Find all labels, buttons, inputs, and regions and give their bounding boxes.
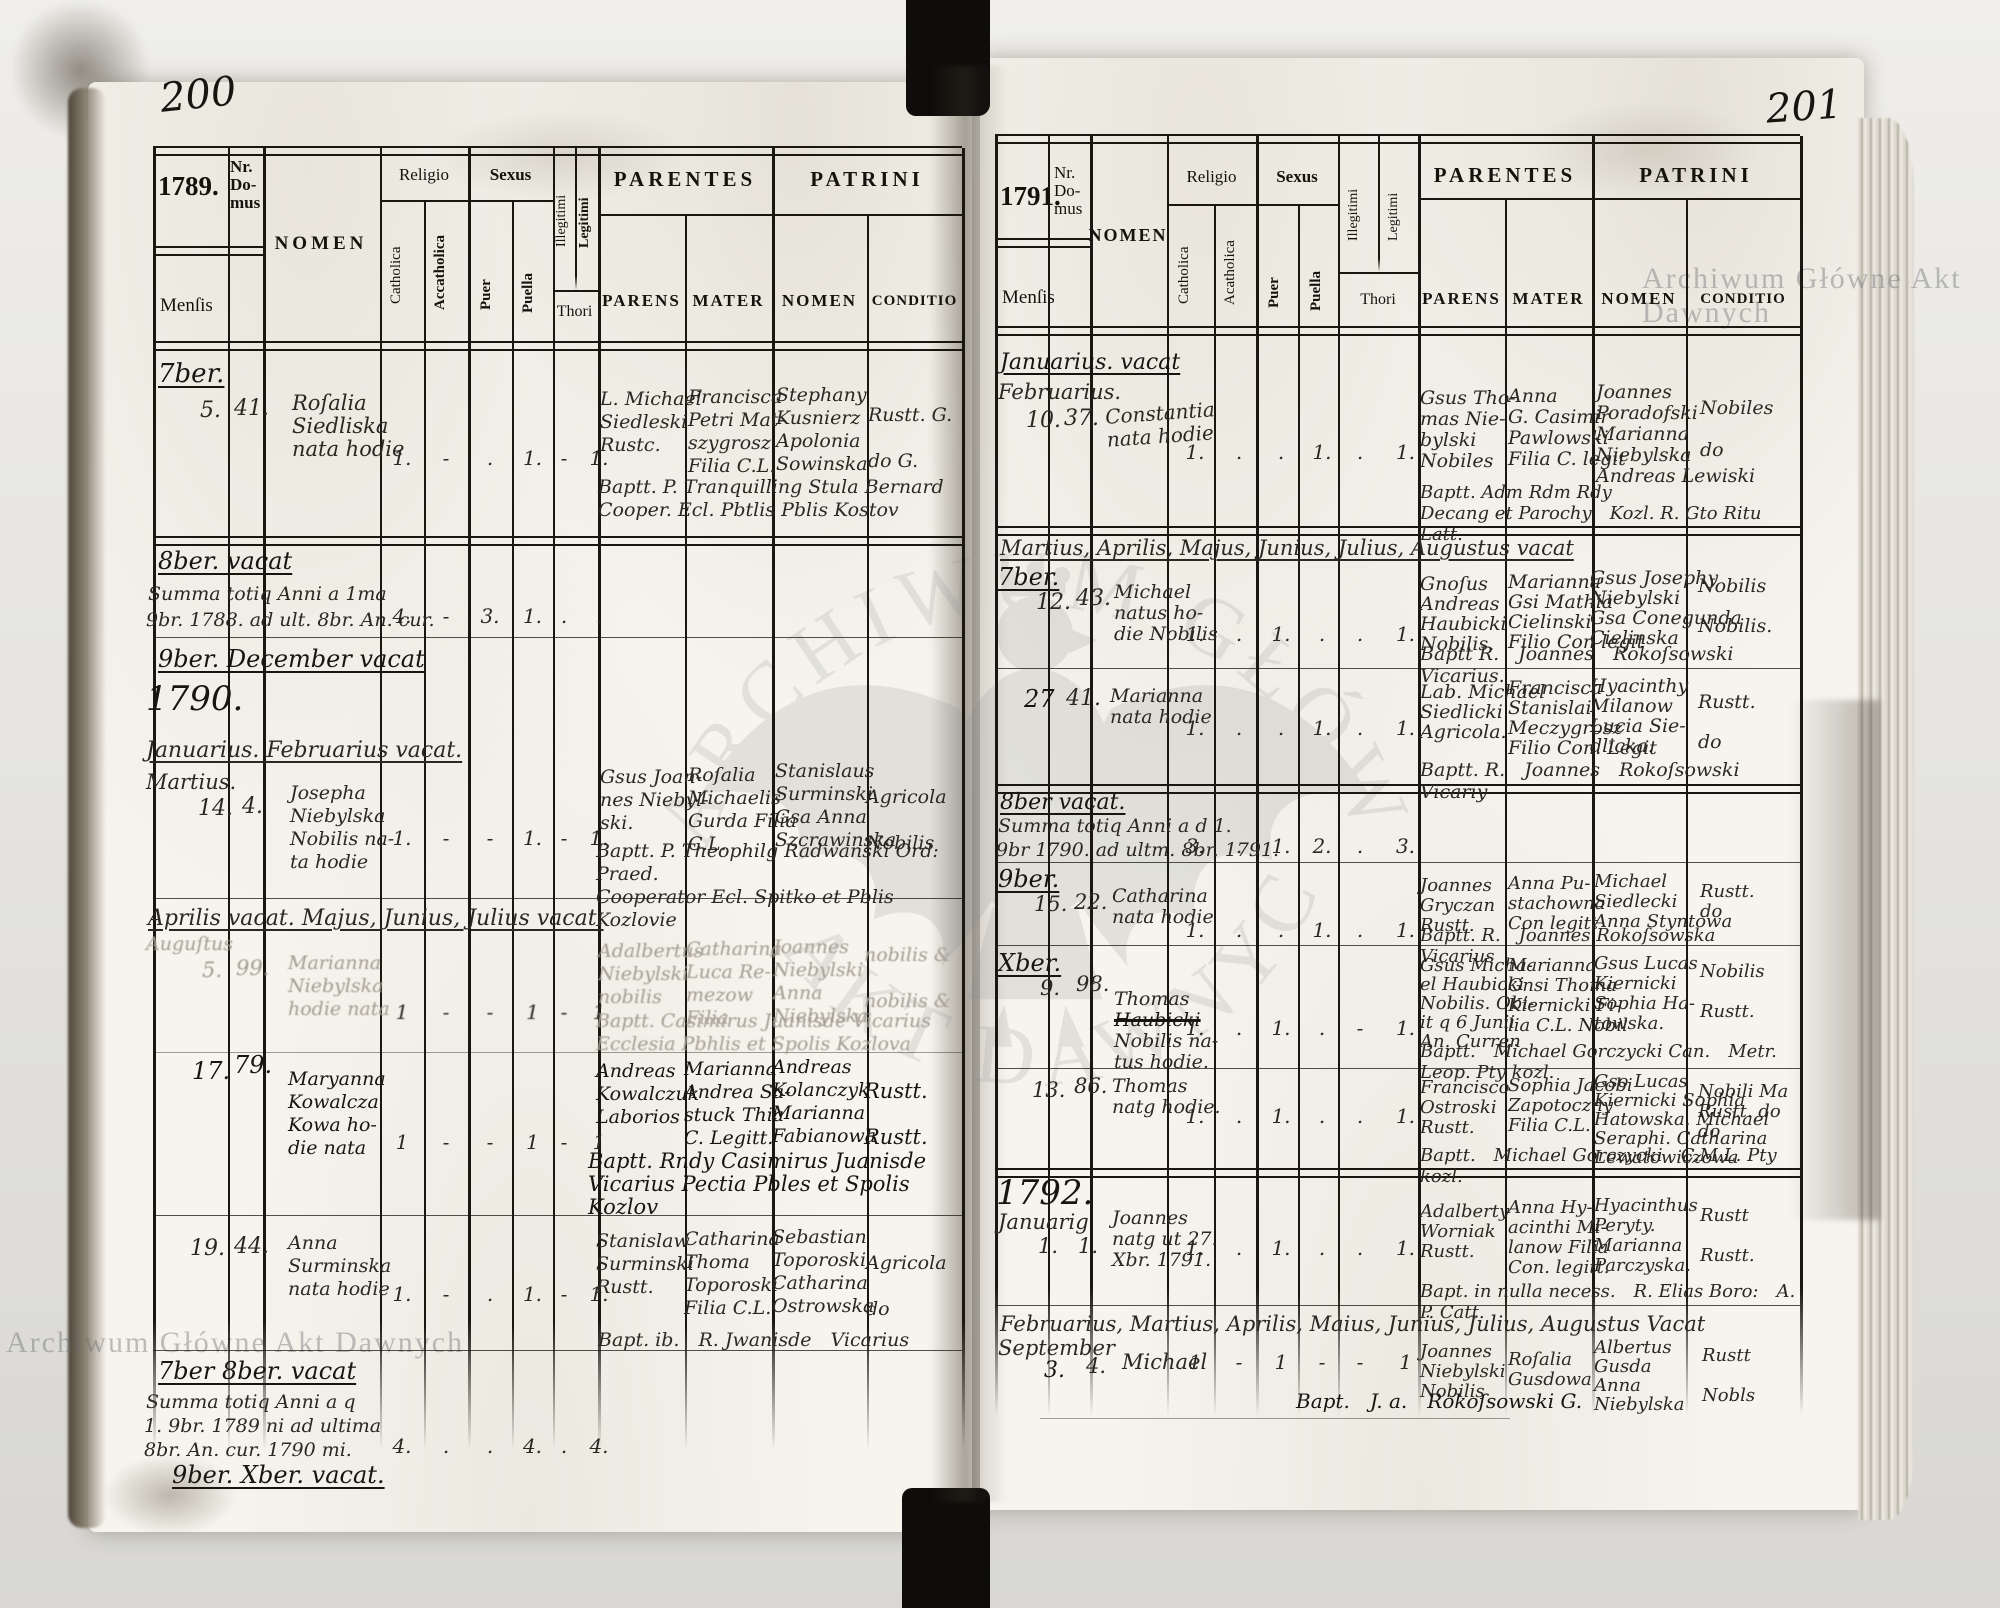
year-heading: 1792. xyxy=(996,1174,1093,1213)
entry-separator xyxy=(1040,1418,1510,1419)
record-baptizer: Baptt. P. Tranquilling Stula Bernard Coo… xyxy=(598,476,968,522)
mark-puer: . xyxy=(1260,716,1302,740)
year-heading: 1790. xyxy=(146,680,243,719)
mark-illegitimi: - xyxy=(1342,1350,1378,1374)
mark-puer: 1. xyxy=(1260,834,1302,858)
record-house-number: 4. xyxy=(1086,1354,1106,1378)
mark-catholica: 1. xyxy=(1172,622,1218,646)
record-parens: Gnoſus Andreas Haubicki Nobilis. xyxy=(1420,574,1507,654)
table-line xyxy=(598,214,962,216)
mark-catholica: 1 xyxy=(1172,1350,1218,1374)
mark-catholica: 1. xyxy=(1172,1236,1218,1260)
table-line xyxy=(1378,136,1380,272)
table-line xyxy=(1338,136,1340,1416)
table-line xyxy=(468,148,471,1450)
mark-catholica: 1. xyxy=(1172,440,1218,464)
month-heading: 7ber. xyxy=(158,360,224,390)
mark-puella: 1 xyxy=(512,1000,553,1024)
summary-marks: 4.-3.1... xyxy=(380,604,623,628)
mark-puella: 1. xyxy=(512,1282,553,1306)
col-header-puer: Puer xyxy=(1266,250,1283,336)
col-header-catholica: Catholica xyxy=(388,212,405,338)
col-header-thori: Thori xyxy=(551,304,598,321)
col-header-nr-domus: Nr. Do- mus xyxy=(230,158,260,212)
col-header-patrini-nomen: NOMEN xyxy=(1592,290,1686,308)
summary-marks: 3..1.2..3. xyxy=(1172,834,1433,858)
mark-catholica: 1. xyxy=(1172,918,1218,942)
record-patrini-nomen: Hyacinthy Milanow Lucia Sie- dlicka. xyxy=(1590,676,1688,756)
record-house-number: 4. xyxy=(242,794,263,819)
mark-puella: . xyxy=(1302,1236,1342,1260)
mark-catholica: 1 xyxy=(380,1000,424,1024)
page-number-left: 200 xyxy=(158,68,239,122)
record-baptizer: Baptt. Rndy Casimirus Juanisde Vicarius … xyxy=(588,1150,968,1219)
mark-acatholica: - xyxy=(1218,1350,1260,1374)
mark-acatholica: . xyxy=(1218,716,1260,740)
col-header-patrini: PATRINI xyxy=(1592,164,1800,186)
mark-puer: . xyxy=(468,446,512,470)
record-conditio: Rustt. do xyxy=(1698,692,1756,752)
mark-illegitimi: - xyxy=(553,1282,575,1306)
record-conditio: Rustt. Rustt. xyxy=(864,1080,928,1149)
mark-acatholica: . xyxy=(424,1434,468,1458)
record-conditio: Nobili Ma Rustt. do do xyxy=(1698,1082,1788,1142)
summary-line: Summa totiq Anni a q xyxy=(146,1392,355,1414)
col-header-patrini-nomen: NOMEN xyxy=(772,292,867,310)
mark-illegitimi: . xyxy=(553,604,575,628)
mark-puer: 1. xyxy=(1260,622,1302,646)
col-header-parens: PARENS xyxy=(598,292,685,310)
mark-puer: - xyxy=(468,1130,512,1154)
mark-puella: 2. xyxy=(1302,834,1342,858)
table-line xyxy=(995,134,1800,144)
mark-puer: - xyxy=(468,826,512,850)
mark-acatholica: . xyxy=(1218,1016,1260,1040)
mark-catholica: 4. xyxy=(380,1434,424,1458)
record-day: 15. xyxy=(1034,892,1067,916)
mark-catholica: 1. xyxy=(1172,1016,1218,1040)
mark-puer: 1. xyxy=(1260,1236,1302,1260)
mark-acatholica: . xyxy=(1218,440,1260,464)
col-header-catholica: Catholica xyxy=(1176,214,1193,336)
col-header-parentes: PARENTES xyxy=(1418,164,1592,186)
mark-catholica: 1. xyxy=(1172,716,1218,740)
mark-illegitimi: - xyxy=(553,1000,575,1024)
table-line xyxy=(553,290,598,292)
mark-puella: 1. xyxy=(1302,918,1342,942)
record-patrini-nomen: Hyacinthus Peryty. Marianna Parczyska. xyxy=(1594,1196,1698,1276)
record-marks: 1.-.1.-1. xyxy=(380,1282,623,1306)
record-house-number: 86. xyxy=(1074,1074,1107,1098)
record-parens: Gsus Tho- mas Nie- bylski Nobiles xyxy=(1420,388,1516,472)
mark-acatholica: - xyxy=(424,1000,468,1024)
mark-illegitimi: - xyxy=(553,826,575,850)
entry-separator xyxy=(153,536,962,546)
record-baptizer: Baptt. R. Joannes Rokoſsowski Vicariy xyxy=(1420,760,1800,804)
mark-legitimi: 4. xyxy=(575,1434,623,1458)
col-header-patrini: PATRINI xyxy=(772,168,962,190)
record-baptizer: Baptt. P. Theophilg Radwanski Ord: Praed… xyxy=(596,840,976,932)
col-header-illegitimi: Illegitimi xyxy=(554,158,570,284)
record-mater: Roſalia Gusdowa xyxy=(1508,1350,1592,1390)
record-mater: Catharina Thoma Toporoski Filia C.L. xyxy=(684,1228,780,1320)
book-spine-bottom xyxy=(902,1488,990,1608)
record-parens: L. Michael Siedleski Rustc. xyxy=(600,388,702,457)
record-conditio: Agricola do xyxy=(866,1252,947,1321)
mark-catholica: 1 xyxy=(380,1130,424,1154)
record-nomen: Marianna Niebylska hodie nata xyxy=(288,952,390,1021)
mark-acatholica: . xyxy=(1218,918,1260,942)
record-day: 17. xyxy=(192,1058,230,1086)
section-note: 8ber. vacat xyxy=(158,548,292,576)
page-number-right: 201 xyxy=(1764,81,1843,132)
section-note: 9ber. Xber. vacat. xyxy=(172,1462,385,1490)
section-note: Februarius, Martius, Aprilis, Maius, Jun… xyxy=(1000,1312,1705,1336)
mark-puer: 3. xyxy=(468,604,512,628)
mark-puer: . xyxy=(1260,918,1302,942)
mark-puer: . xyxy=(468,1434,512,1458)
record-day: 3. xyxy=(1044,1358,1065,1383)
mark-catholica: 1. xyxy=(380,826,424,850)
col-header-mater: MATER xyxy=(685,292,772,310)
col-header-mensis: Menſis xyxy=(160,296,213,316)
mark-puella: 1. xyxy=(512,604,553,628)
mark-acatholica: . xyxy=(1218,1236,1260,1260)
col-header-parens: PARENS xyxy=(1418,290,1505,308)
record-house-number: 22. xyxy=(1074,890,1107,914)
record-month: 9ber. xyxy=(998,866,1059,894)
mark-illegitimi: . xyxy=(553,1434,575,1458)
record-day: 19. xyxy=(190,1236,225,1261)
mark-puella: . xyxy=(1302,622,1342,646)
mark-puella: - xyxy=(1302,1350,1342,1374)
record-house-number: 41. xyxy=(1066,686,1101,711)
section-note: 8ber vacat. xyxy=(1000,790,1125,815)
table-line xyxy=(962,148,965,1450)
col-header-nomen: NOMEN xyxy=(266,234,376,254)
record-day: 14. xyxy=(198,796,233,821)
record-conditio: Nobiles do xyxy=(1700,398,1773,461)
mark-puella: 1. xyxy=(512,826,553,850)
mark-legitimi: 3. xyxy=(1378,834,1433,858)
summary-line: 1. 9br. 1789 ni ad ultima xyxy=(144,1416,381,1438)
record-month: Auguſtus xyxy=(146,934,233,956)
record-patrini-nomen: Gsus Lucas Kiernicki Sophia Ha- towska. xyxy=(1594,954,1698,1034)
col-header-mater: MATER xyxy=(1505,290,1592,308)
col-header-parentes: PARENTES xyxy=(598,168,772,190)
mark-puella: 1. xyxy=(1302,716,1342,740)
record-marks: 1...1..1. xyxy=(1172,716,1433,740)
record-house-number: 99. xyxy=(236,956,269,980)
record-mater: Francisca Petri Mat- szygrosz Filia C.L. xyxy=(688,386,785,478)
col-header-puer: Puer xyxy=(478,252,495,338)
table-line xyxy=(153,146,962,156)
col-header-puella: Puella xyxy=(1308,246,1325,336)
record-day: 9. xyxy=(1040,976,1060,1000)
table-line xyxy=(995,238,1090,248)
section-note: Januarius. vacat xyxy=(1000,350,1180,375)
mark-puer: 1. xyxy=(1260,1016,1302,1040)
table-line xyxy=(1800,136,1803,1416)
record-marks: 1...1..1. xyxy=(1172,440,1433,464)
year-header-right: 1791. xyxy=(1000,182,1061,210)
record-patrini-nomen: Sebastian Toporoski Catharina Ostrowska xyxy=(772,1226,874,1318)
mark-illegitimi: . xyxy=(1342,834,1378,858)
record-baptizer: Baptt. Michael Gorczycki C.M.L. Pty kozl… xyxy=(1420,1146,1800,1187)
table-line xyxy=(153,246,265,256)
mark-illegitimi: . xyxy=(1342,716,1378,740)
record-marks: 1..1...1. xyxy=(1172,1236,1433,1260)
record-parens: Stanislaw Surminski Rustt. xyxy=(596,1230,694,1299)
record-patrini-nomen: Stephany Kusnierz Apolonia Sowinska xyxy=(776,384,868,476)
mark-catholica: 1. xyxy=(1172,1104,1218,1128)
section-note: Aprilis vacat. Majus, Junius, Julius vac… xyxy=(148,906,604,931)
record-month: 7ber. xyxy=(998,564,1059,592)
mark-legitimi: . xyxy=(575,604,623,628)
section-note: 7ber 8ber. vacat xyxy=(158,1358,356,1386)
record-conditio: Rustt. G. do G. xyxy=(868,404,952,473)
col-header-acatholica: Accatholica xyxy=(432,208,449,338)
mark-acatholica: - xyxy=(424,1130,468,1154)
table-line xyxy=(553,148,555,1450)
mark-illegitimi: - xyxy=(1342,1016,1378,1040)
table-line xyxy=(153,341,962,351)
record-baptizer: Bapt. ib. R. Jwanisde Vicarius xyxy=(598,1330,968,1352)
col-header-sexus: Sexus xyxy=(1256,168,1338,186)
col-header-sexus: Sexus xyxy=(468,166,553,184)
mark-puer: . xyxy=(1260,440,1302,464)
record-parens: Francisco Ostroski Rustt. xyxy=(1420,1078,1509,1138)
record-day: 13. xyxy=(1032,1078,1065,1102)
record-marks: 1..1...1. xyxy=(1172,622,1433,646)
col-header-legitimi: Legitimi xyxy=(1386,160,1402,274)
col-header-religio: Religio xyxy=(1167,168,1256,186)
record-day: 27 xyxy=(1024,686,1055,714)
mark-illegitimi: - xyxy=(553,1130,575,1154)
summary-line: Summa totiq Anni a 1ma xyxy=(148,584,387,606)
record-marks: 1..1..-1. xyxy=(1172,1016,1433,1040)
col-header-thori: Thori xyxy=(1338,292,1418,309)
record-house-number: 41. xyxy=(234,396,269,421)
mark-illegitimi: . xyxy=(1342,1236,1378,1260)
record-month: Martius. xyxy=(146,770,236,794)
mark-illegitimi: . xyxy=(1342,1104,1378,1128)
record-month: Januarig xyxy=(998,1210,1089,1234)
record-day: 12. xyxy=(1036,590,1071,615)
mark-puella: 1. xyxy=(1302,440,1342,464)
table-line xyxy=(512,200,514,1450)
table-line xyxy=(995,326,1800,336)
record-month: Xber. xyxy=(998,950,1061,978)
mark-puer: - xyxy=(468,1000,512,1024)
record-conditio: Rustt. do xyxy=(1700,882,1755,922)
record-day: 5. xyxy=(200,398,221,423)
col-header-puella: Puella xyxy=(520,248,537,338)
col-header-nomen: NOMEN xyxy=(1088,226,1168,245)
record-marks: 1-1--1 xyxy=(1172,1350,1433,1374)
col-header-acatholica: Acatholica xyxy=(1222,210,1239,336)
summary-marks: 4...4..4. xyxy=(380,1434,623,1458)
record-marks: 1.--1.-1. xyxy=(380,826,623,850)
record-marks: 1--1-1 xyxy=(380,1130,623,1154)
col-header-conditio: CONDITIO xyxy=(1686,292,1800,308)
mark-catholica: 3. xyxy=(1172,834,1218,858)
entry-separator xyxy=(995,862,1800,863)
col-header-conditio: CONDITIO xyxy=(867,294,962,310)
entry-separator xyxy=(153,637,962,638)
table-line xyxy=(1090,136,1093,1416)
col-header-mensis: Menſis xyxy=(1002,288,1055,308)
mark-acatholica: - xyxy=(424,604,468,628)
table-line xyxy=(1256,136,1259,1416)
record-day: 1. xyxy=(1038,1234,1058,1258)
mark-acatholica: - xyxy=(424,826,468,850)
mark-puella: 4. xyxy=(512,1434,553,1458)
mark-acatholica: . xyxy=(1218,1104,1260,1128)
summary-line: 8br. An. cur. 1790 mi. xyxy=(144,1440,352,1462)
mark-acatholica: - xyxy=(424,1282,468,1306)
mark-puer: 1 xyxy=(1260,1350,1302,1374)
record-marks: 1--1-1 xyxy=(380,1000,623,1024)
record-house-number: 44. xyxy=(234,1234,269,1259)
mark-catholica: 4. xyxy=(380,604,424,628)
table-line xyxy=(1298,204,1300,1416)
col-header-legitimi: Legitimi xyxy=(577,162,593,284)
record-month: Februarius. xyxy=(998,380,1121,404)
record-nomen: Josepha Niebylska Nobilis na- ta hodie xyxy=(290,782,394,874)
record-baptizer: Bapt. J. a. Rokoſsowski G. xyxy=(1296,1390,1716,1413)
col-header-religio: Religio xyxy=(380,166,468,184)
mark-puella: 1. xyxy=(512,446,553,470)
mark-catholica: 1. xyxy=(380,446,424,470)
mark-catholica: 1. xyxy=(380,1282,424,1306)
record-day: 10. xyxy=(1026,408,1061,433)
record-marks: 1..1...1. xyxy=(1172,1104,1433,1128)
mark-puer: . xyxy=(468,1282,512,1306)
record-nomen: Anna Surminska nata hodie xyxy=(288,1232,391,1301)
mark-acatholica: - xyxy=(424,446,468,470)
table-line xyxy=(1167,204,1338,206)
mark-acatholica: . xyxy=(1218,834,1260,858)
record-patrini-nomen: Andreas Kolanczyk Marianna Fabianowa xyxy=(772,1056,876,1148)
mark-illegitimi: . xyxy=(1342,918,1378,942)
record-day: 5. xyxy=(202,958,222,982)
record-nomen: Maryanna Kowalcza Kowa ho- die nata xyxy=(288,1068,386,1160)
col-header-illegitimi: Illegitimi xyxy=(1346,156,1362,274)
table-line xyxy=(1418,198,1800,200)
mark-illegitimi: . xyxy=(1342,622,1378,646)
table-line xyxy=(424,200,426,1450)
mark-puella: . xyxy=(1302,1016,1342,1040)
mark-puer: 1. xyxy=(1260,1104,1302,1128)
section-note: 9ber. December vacat xyxy=(158,646,425,674)
record-conditio: nobilis & nobilis & xyxy=(864,944,951,1013)
record-conditio: Nobilis Rustt. xyxy=(1700,962,1765,1022)
book-edge-left xyxy=(68,88,106,1528)
mark-acatholica: . xyxy=(1218,622,1260,646)
record-house-number: 37. xyxy=(1064,406,1099,431)
record-parens: Adalberty Worniak Rustt. xyxy=(1420,1202,1509,1262)
section-note: Januarius. Februarius vacat. xyxy=(146,738,462,763)
record-house-number: 98. xyxy=(1076,972,1109,996)
record-house-number: 79. xyxy=(234,1052,272,1080)
record-conditio: Rustt Rustt. xyxy=(1700,1206,1755,1266)
year-header-left: 1789. xyxy=(158,172,219,200)
section-note: Martius, Aprilis, Majus, Junius, Julius,… xyxy=(1000,536,1574,560)
record-marks: 1...1..1. xyxy=(1172,918,1433,942)
record-baptizer: Baptt. Casimirus Juanisde Vicarius Eccle… xyxy=(596,1010,966,1056)
record-nomen-part: Thomas xyxy=(1114,988,1189,1010)
record-house-number: 1. xyxy=(1078,1234,1098,1258)
table-line xyxy=(380,200,553,202)
record-house-number: 43. xyxy=(1076,586,1111,611)
mark-puella: 1 xyxy=(512,1130,553,1154)
record-marks: 1.-.1.-1. xyxy=(380,446,623,470)
table-line xyxy=(153,148,156,1450)
scanned-register-spread: ARCHIWUM GŁÓWNE AKT DAWNYCH Archiwum Głó… xyxy=(0,0,2000,1608)
col-header-nr-domus: Nr. Do- mus xyxy=(1054,164,1082,218)
watermark-text-bottom-left: Archiwum Główne Akt Dawnych xyxy=(6,1326,464,1360)
mark-illegitimi: . xyxy=(1342,440,1378,464)
record-conditio: Nobilis Nobilis. xyxy=(1698,576,1772,636)
mark-illegitimi: - xyxy=(553,446,575,470)
mark-puella: . xyxy=(1302,1104,1342,1128)
